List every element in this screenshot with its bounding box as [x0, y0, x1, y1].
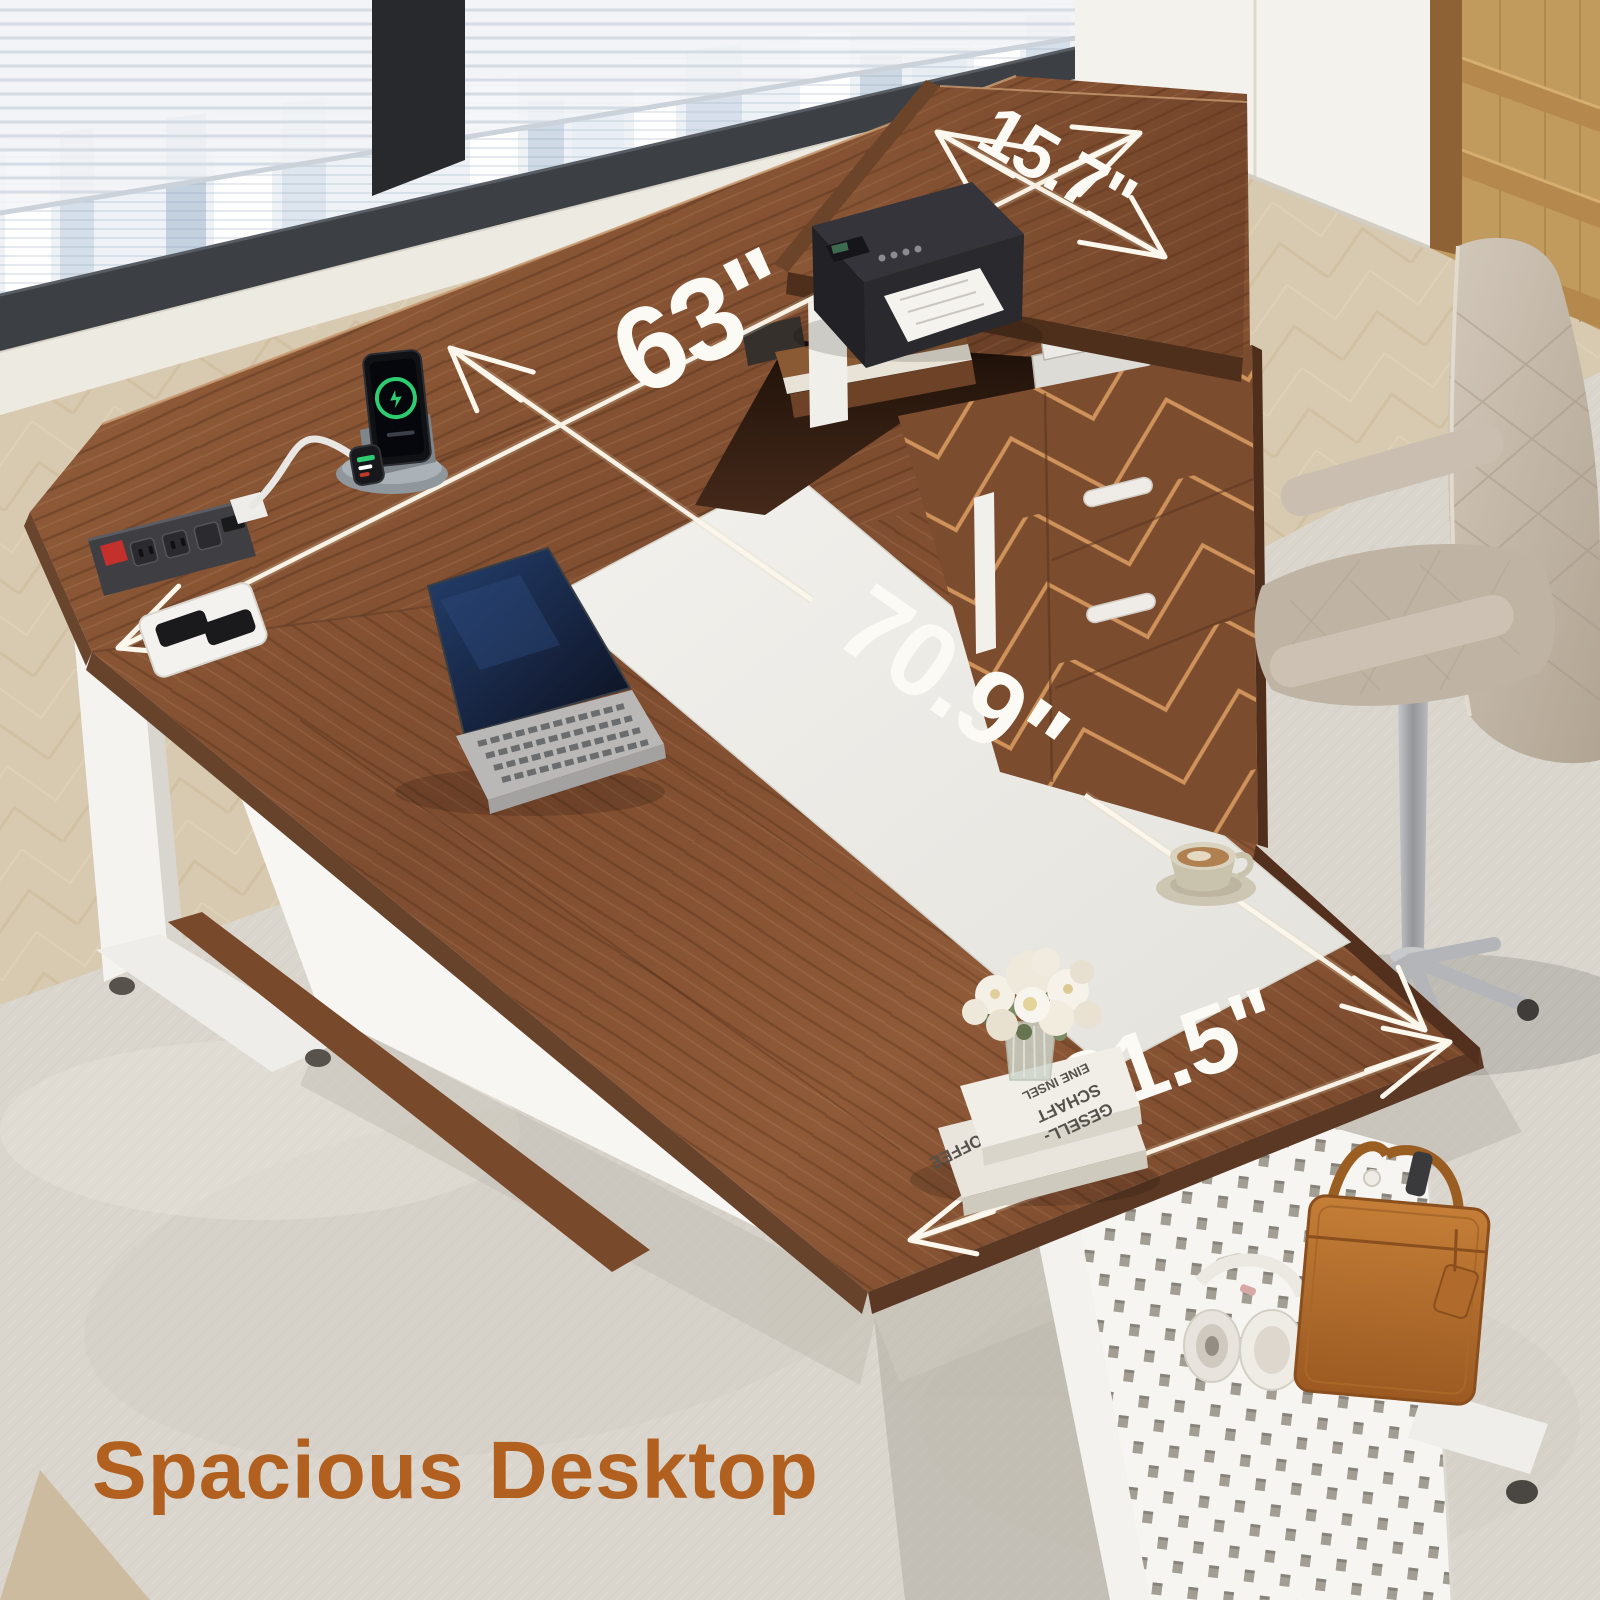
smartwatch [349, 444, 385, 487]
product-image: 63" 70.9" 31.5" 15.7" [0, 0, 1600, 1600]
bag-hook [1364, 1170, 1380, 1186]
caption-title: Spacious Desktop [92, 1425, 819, 1516]
